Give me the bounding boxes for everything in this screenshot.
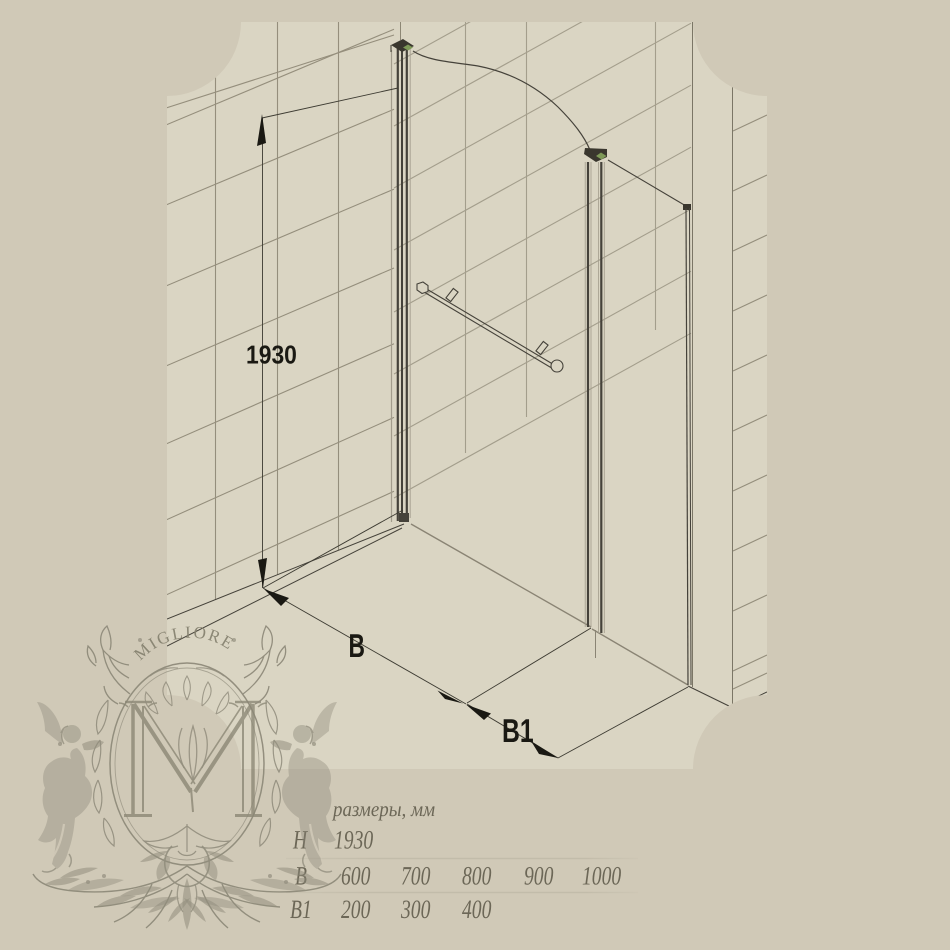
svg-text:300: 300 [400, 894, 430, 924]
svg-text:B: B [349, 627, 365, 664]
svg-text:600: 600 [341, 861, 370, 891]
svg-text:1930: 1930 [334, 825, 373, 855]
svg-text:400: 400 [462, 894, 491, 924]
svg-text:800: 800 [462, 861, 491, 891]
svg-text:1930: 1930 [246, 340, 297, 370]
svg-text:900: 900 [524, 861, 553, 891]
svg-text:размеры, мм: размеры, мм [331, 797, 435, 821]
svg-text:700: 700 [401, 861, 430, 891]
svg-text:B1: B1 [290, 894, 312, 924]
svg-text:1000: 1000 [582, 861, 621, 891]
svg-text:B1: B1 [502, 712, 534, 749]
svg-text:200: 200 [341, 894, 370, 924]
